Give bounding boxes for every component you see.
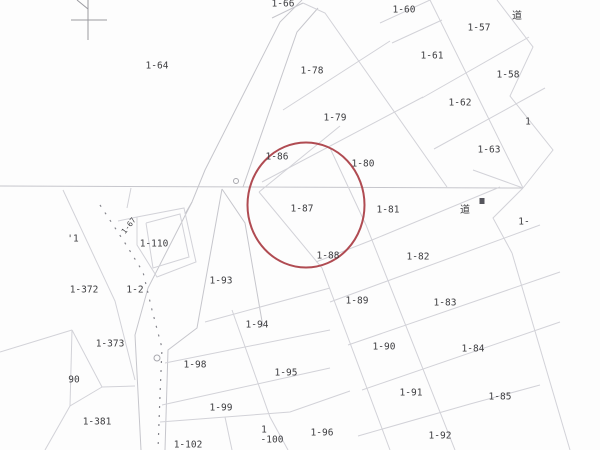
parcel-boundary-line xyxy=(165,330,330,363)
parcel-label: 1-64 xyxy=(146,61,169,72)
parcel-label: 1-60 xyxy=(393,5,416,16)
map-square-symbol-icon xyxy=(480,198,485,204)
parcel-label: 1-78 xyxy=(301,66,324,77)
parcel-boundary-line xyxy=(45,330,102,450)
survey-cross-mark xyxy=(77,0,88,9)
parcel-boundary-line xyxy=(0,330,72,352)
parcel-boundary-line xyxy=(330,225,540,302)
parcel-label: 90 xyxy=(68,375,80,386)
parcel-label: 1-57 xyxy=(468,23,491,34)
parcel-boundary-line xyxy=(70,330,72,406)
parcel-boundary-line xyxy=(225,417,232,450)
survey-point-circle-icon xyxy=(154,355,160,361)
parcel-label: 1-84 xyxy=(462,344,485,355)
parcel-label: 1-79 xyxy=(324,113,347,124)
parcel-label: 1-63 xyxy=(478,145,501,156)
parcel-label: 1-96 xyxy=(311,428,334,439)
parcel-label: 1-98 xyxy=(184,360,207,371)
parcel-boundary-line xyxy=(392,20,442,43)
road-boundary-line xyxy=(0,186,523,188)
parcel-label: 1-61 xyxy=(421,51,444,62)
map-viewport: 1-641-661-60道1-571-611-781-581-621-7911-… xyxy=(0,0,600,450)
parcel-label: 1-67 xyxy=(119,216,137,236)
parcel-label: 1-372 xyxy=(70,285,99,296)
parcel-label: 1-62 xyxy=(449,98,472,109)
parcel-boundary-line xyxy=(162,368,330,405)
parcel-label: '1 xyxy=(67,234,79,245)
cadastral-map: 1-641-661-60道1-571-611-781-581-621-7911-… xyxy=(0,0,600,450)
parcel-label: 1-95 xyxy=(275,368,298,379)
parcel-boundary-line xyxy=(259,192,390,450)
parcel-boundary-line xyxy=(232,310,288,450)
parcel-label: 1-86 xyxy=(266,152,289,163)
parcel-label: 1-110 xyxy=(140,239,169,250)
parcel-boundary-line xyxy=(303,3,447,187)
parcel-label: 1-373 xyxy=(96,339,125,350)
parcel-label: 1-80 xyxy=(352,159,375,170)
road-kanji-label: 道 xyxy=(460,203,470,216)
parcel-boundary-line xyxy=(160,391,350,422)
parcel-label: 1-94 xyxy=(246,320,269,331)
parcel-label: 1-2 xyxy=(126,285,143,296)
parcel-label: 1-89 xyxy=(346,296,369,307)
parcel-label: 1-87 xyxy=(291,204,314,215)
parcel-label: 1-58 xyxy=(497,70,520,81)
parcel-label: 1-82 xyxy=(407,252,430,263)
parcel-boundary-line xyxy=(497,0,553,188)
parcel-label: 1- xyxy=(518,217,529,228)
road-kanji-label: 道 xyxy=(512,9,522,22)
parcel-boundary-line xyxy=(283,41,390,110)
parcel-label: 1-81 xyxy=(377,205,400,216)
road-boundary-line xyxy=(185,0,302,214)
parcel-label: 1-381 xyxy=(83,417,112,428)
parcel-label: 1-93 xyxy=(210,276,233,287)
parcel-label: 1-88 xyxy=(317,251,340,262)
parcel-boundary-line xyxy=(362,322,560,390)
parcel-label: 1-92 xyxy=(429,431,452,442)
parcel-label: 1-99 xyxy=(210,403,233,414)
parcel-boundary-line xyxy=(358,385,540,436)
parcel-label: 1-90 xyxy=(373,342,396,353)
parcel-label: 1-91 xyxy=(400,388,423,399)
parcel-boundary-line xyxy=(205,288,330,322)
survey-point-circle-icon xyxy=(234,179,239,184)
road-boundary-line xyxy=(222,189,263,327)
parcel-label: 1-83 xyxy=(434,298,457,309)
parcel-label: 1-66 xyxy=(272,0,295,10)
parcel-label: -100 xyxy=(261,435,284,446)
parcel-boundary-line xyxy=(102,386,135,387)
parcel-label: 1-85 xyxy=(489,392,512,403)
parcel-boundary-line xyxy=(127,188,131,208)
parcel-label: 1 xyxy=(525,117,531,128)
parcel-label: 1-102 xyxy=(174,440,203,450)
parcel-boundary-line xyxy=(512,253,570,450)
